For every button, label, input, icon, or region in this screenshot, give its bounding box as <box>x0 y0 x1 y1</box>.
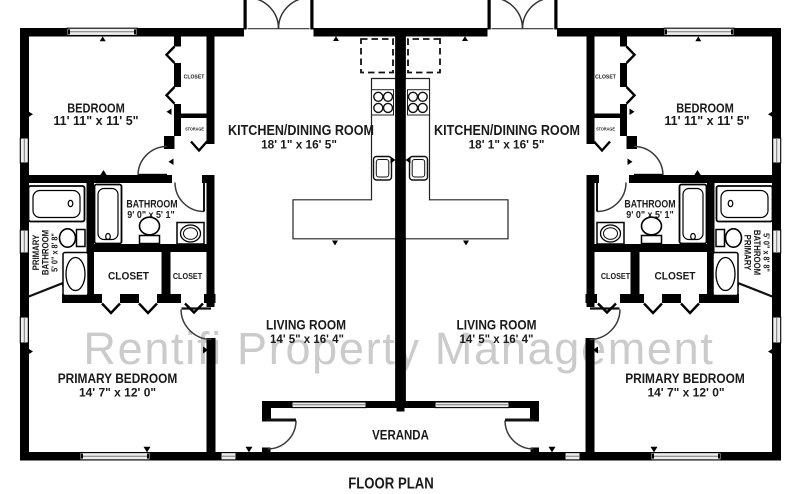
svg-text:KITCHEN/DINING ROOM: KITCHEN/DINING ROOM <box>228 122 374 138</box>
svg-text:CLOSET: CLOSET <box>601 272 631 281</box>
svg-text:18' 1" x 16' 5": 18' 1" x 16' 5" <box>469 138 545 152</box>
svg-text:STORAGE: STORAGE <box>596 126 615 131</box>
svg-text:11' 11" x 11' 5": 11' 11" x 11' 5" <box>664 114 749 128</box>
svg-text:CLOSET: CLOSET <box>184 74 205 80</box>
svg-text:PRIMARY BEDROOM: PRIMARY BEDROOM <box>58 370 178 386</box>
svg-text:14' 5" x 16' 4": 14' 5" x 16' 4" <box>460 334 534 346</box>
svg-text:14' 5" x 16' 4": 14' 5" x 16' 4" <box>270 334 344 346</box>
svg-text:LIVING ROOM: LIVING ROOM <box>457 316 537 332</box>
svg-text:CLOSET: CLOSET <box>108 270 149 282</box>
svg-text:11' 11" x 11' 5": 11' 11" x 11' 5" <box>53 114 138 128</box>
svg-text:CLOSET: CLOSET <box>173 272 203 281</box>
svg-text:STORAGE: STORAGE <box>185 126 204 131</box>
svg-text:PRIMARY: PRIMARY <box>742 235 753 271</box>
svg-text:14' 7" x 12' 0": 14' 7" x 12' 0" <box>79 386 156 400</box>
svg-text:5' 0" x 8' 8": 5' 0" x 8' 8" <box>761 233 771 272</box>
svg-text:KITCHEN/DINING ROOM: KITCHEN/DINING ROOM <box>434 122 580 138</box>
svg-text:CLOSET: CLOSET <box>595 74 616 80</box>
svg-text:CLOSET: CLOSET <box>655 270 696 282</box>
svg-text:PRIMARY BEDROOM: PRIMARY BEDROOM <box>625 370 745 386</box>
svg-text:5' 0" x 8' 8": 5' 0" x 8' 8" <box>50 233 60 272</box>
svg-text:VERANDA: VERANDA <box>372 428 429 443</box>
svg-text:FLOOR PLAN: FLOOR PLAN <box>348 475 434 492</box>
svg-text:BATHROOM: BATHROOM <box>752 230 763 275</box>
svg-text:18' 1" x 16' 5": 18' 1" x 16' 5" <box>261 138 337 152</box>
svg-text:LIVING ROOM: LIVING ROOM <box>266 316 346 332</box>
svg-text:14' 7" x 12' 0": 14' 7" x 12' 0" <box>647 386 724 400</box>
svg-text:9' 0" x 5' 1": 9' 0" x 5' 1" <box>127 209 174 221</box>
svg-text:9' 0" x 5' 1": 9' 0" x 5' 1" <box>626 209 673 221</box>
